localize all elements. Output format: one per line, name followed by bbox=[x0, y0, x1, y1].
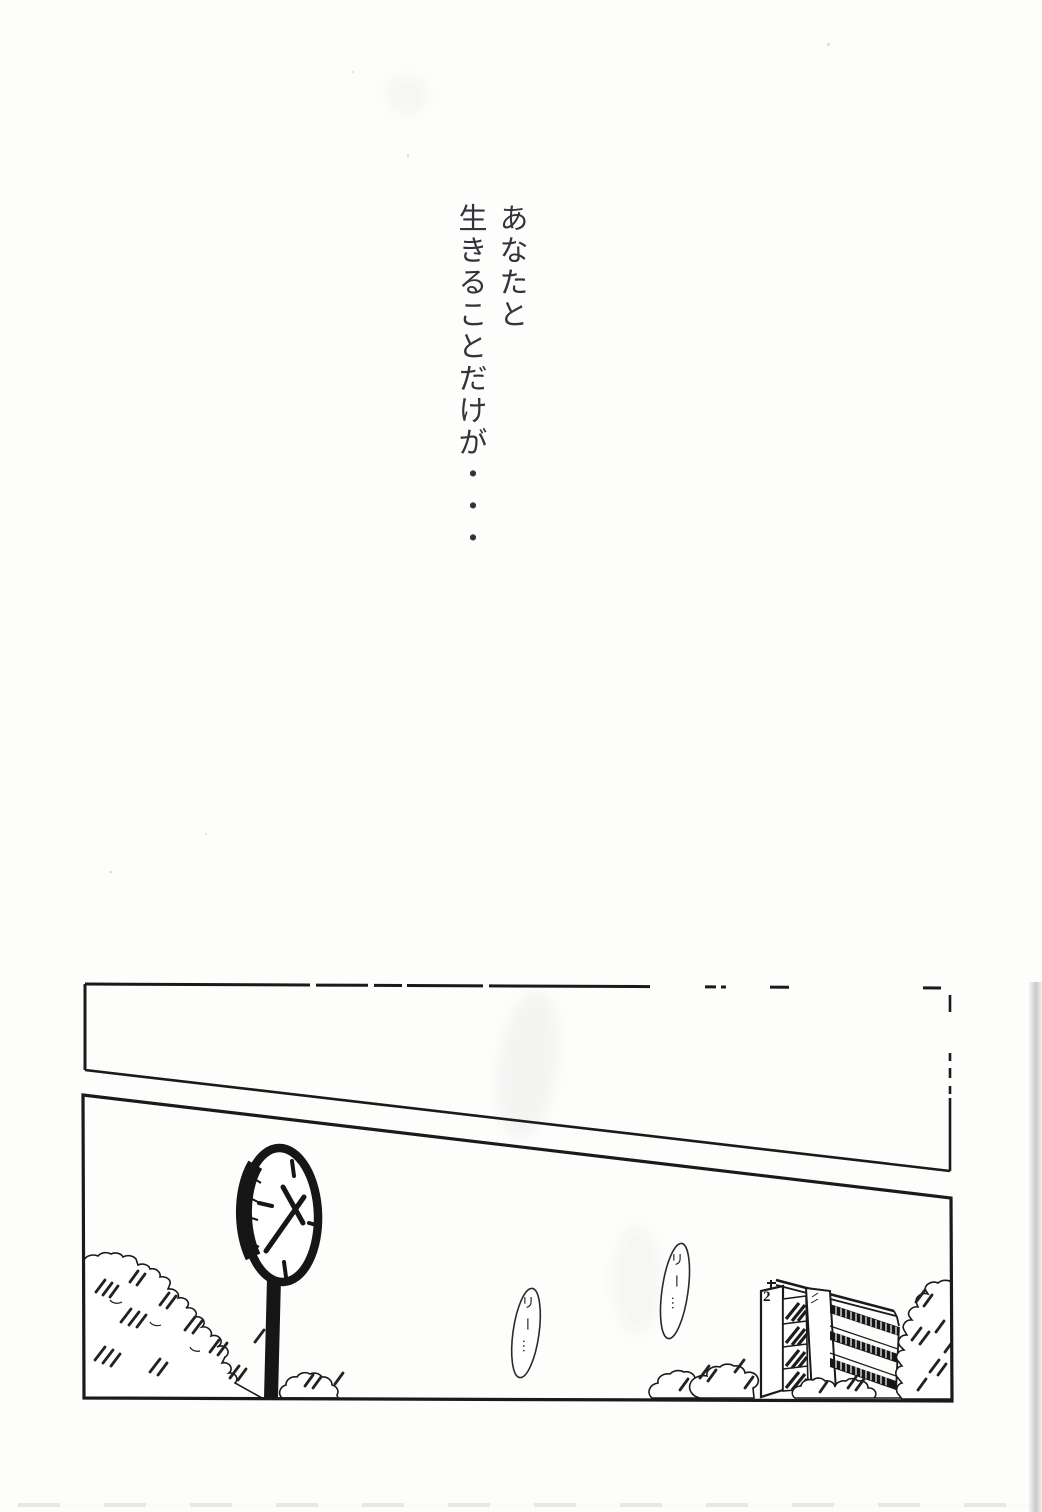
clock-pole bbox=[264, 1278, 281, 1398]
bush-center-2 bbox=[690, 1364, 759, 1398]
scan-edge-shadow-bottom bbox=[18, 1503, 1036, 1507]
scan-speck bbox=[407, 154, 409, 157]
sfx-cicada-2: リー… bbox=[518, 1295, 536, 1361]
scan-smudge bbox=[612, 1225, 662, 1335]
scan-speck bbox=[827, 43, 830, 46]
bush-pole-base bbox=[280, 1373, 338, 1398]
building-floor-number: 2 bbox=[763, 1289, 771, 1306]
sfx-cicada-1: リー… bbox=[667, 1252, 685, 1318]
caption-column-2: 生きることだけが・・・ bbox=[449, 203, 490, 603]
clock-tower bbox=[242, 1147, 321, 1398]
caption-vertical-text: あなたと 生きることだけが・・・ bbox=[445, 203, 531, 603]
school-building bbox=[761, 1280, 899, 1397]
scan-edge-shadow-right bbox=[1028, 982, 1042, 1512]
scan-speck bbox=[352, 71, 354, 73]
scan-smudge bbox=[385, 75, 429, 115]
scan-speck bbox=[205, 833, 207, 835]
manga-page: あなたと 生きることだけが・・・ リー… リー… 2 bbox=[0, 0, 1042, 1512]
bush-left bbox=[84, 1253, 262, 1398]
caption-column-1: あなたと bbox=[490, 203, 531, 603]
scan-speck bbox=[109, 871, 112, 873]
